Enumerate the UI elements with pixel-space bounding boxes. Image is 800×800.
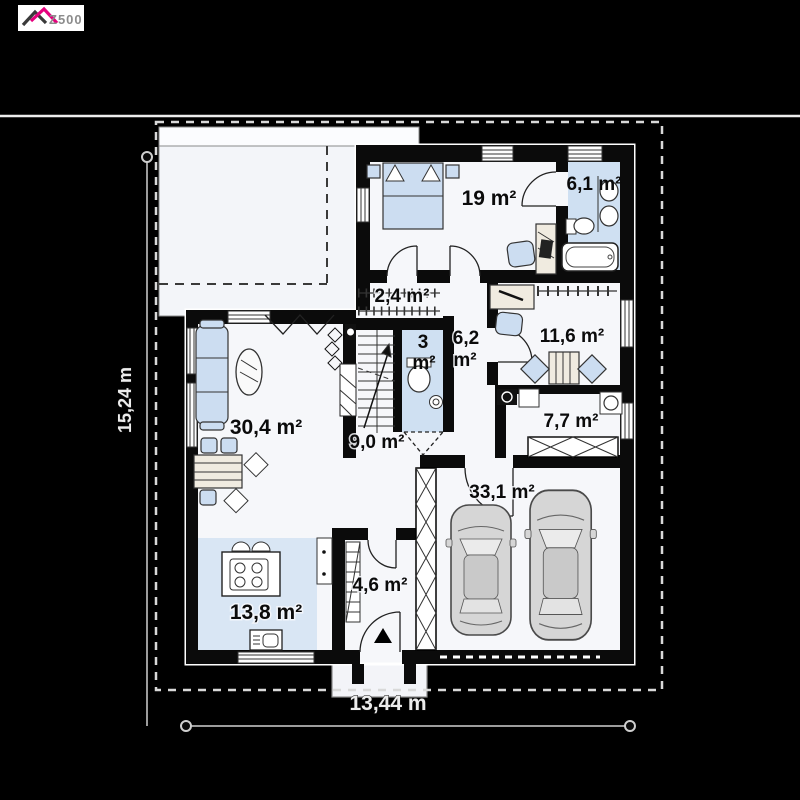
utility-cabinet	[528, 437, 618, 457]
brand-name: Z500	[49, 12, 83, 27]
window-top-2	[568, 146, 602, 161]
floor-plan-drawing: 15,24 m 13,44 m 19 m² 6,1 m² 2,4 m² 3 m²…	[0, 0, 800, 800]
room-label-stair-hall: 9,0 m²	[350, 432, 405, 453]
floor-plan-canvas: 15,24 m 13,44 m 19 m² 6,1 m² 2,4 m² 3 m²…	[0, 0, 800, 800]
room-label-kitchen: 13,8 m²	[230, 601, 302, 624]
window-top-1	[482, 146, 513, 161]
room-label-hallway-value: 6,2	[453, 328, 479, 349]
width-dimension-label: 13,44 m	[349, 692, 426, 715]
sofa	[196, 320, 228, 430]
window-kitchen-bottom	[238, 652, 314, 663]
room-label-bedroom: 19 m²	[462, 187, 517, 210]
room-label-wc-value: 3	[418, 332, 429, 353]
window-office-right	[621, 300, 633, 347]
brand-logo: Z500	[18, 5, 84, 31]
wall-vestibule-left	[332, 540, 345, 664]
room-label-bathroom: 6,1 m²	[567, 174, 622, 195]
room-label-office: 11,6 m²	[540, 326, 604, 347]
office-table	[549, 352, 579, 384]
window-bedroom-terrace	[357, 188, 369, 222]
room-label-utility: 7,7 m²	[544, 411, 599, 432]
height-dimension-label: 15,24 m	[115, 367, 135, 433]
car-right	[525, 490, 596, 640]
car-left	[446, 505, 516, 635]
room-label-living: 30,4 m²	[230, 416, 302, 439]
kitchen-sink	[250, 630, 282, 650]
sink-2	[600, 206, 618, 226]
room-label-vestibule: 4,6 m²	[353, 575, 408, 596]
office-chair	[495, 312, 523, 337]
room-label-hallway-unit: m²	[453, 350, 476, 371]
boiler	[600, 392, 622, 414]
duct-shaft	[416, 468, 436, 650]
toilet-bowl	[574, 218, 594, 234]
window-living-top	[228, 311, 270, 323]
kitchen-counter	[317, 538, 332, 584]
room-label-wardrobe: 2,4 m²	[375, 286, 430, 307]
window-utility-right	[621, 403, 633, 439]
room-label-garage: 33,1 m²	[469, 482, 534, 503]
room-label-wc-unit: m²	[412, 353, 435, 374]
side-table	[236, 349, 262, 395]
